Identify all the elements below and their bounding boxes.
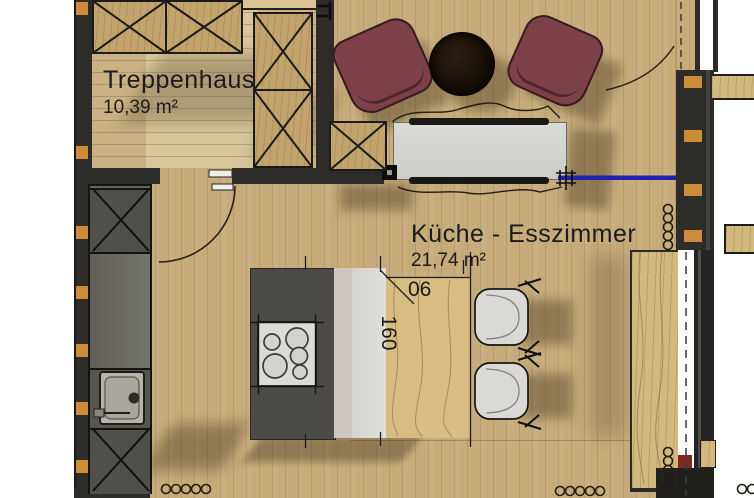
round-coffee-table: [429, 32, 495, 96]
wall-treppenhaus-a: [90, 168, 160, 184]
room-label-kueche: Küche - Esszimmer: [411, 220, 636, 249]
wall-stud: [684, 76, 702, 88]
shadow-chair-2: [522, 374, 572, 418]
frame-wood-block: [700, 440, 716, 468]
sink-cabinet: [90, 368, 150, 430]
dimension-table-length: 160: [378, 298, 400, 368]
wall-stub-top-right: [712, 74, 754, 100]
room-area-kueche: 21,74 m²: [411, 250, 486, 272]
counter-worktop: [90, 252, 150, 370]
plank-seam: [350, 440, 676, 441]
shadow-sideboard: [564, 128, 616, 210]
window-sill-bottom: [656, 468, 714, 498]
wall-right-inner-line: [706, 70, 710, 252]
shadow-side-cabinet: [340, 184, 412, 210]
appliance-top: [90, 188, 150, 254]
appliance-bottom: [90, 428, 150, 494]
wall-stud: [76, 344, 88, 357]
wall-end-cap-dot: [387, 170, 392, 175]
island-ledge: [334, 268, 352, 438]
frame-red-block: [678, 455, 692, 468]
sideboard-rail-bottom: [409, 177, 549, 184]
wall-stud: [76, 2, 88, 15]
wall-stud: [76, 146, 88, 159]
sideboard-rail-top: [409, 118, 549, 125]
wall-top-right-a: [695, 0, 700, 72]
room-area-treppenhaus: 10,39 m²: [103, 97, 178, 119]
wall-stud: [684, 230, 702, 242]
wardrobe-x-cabinet: [92, 0, 242, 54]
kitchen-counter: [90, 186, 150, 492]
wall-top-right-b: [713, 0, 718, 72]
floor-extension-top-right: [676, 0, 695, 72]
sideboard: [393, 122, 567, 180]
wall-right: [676, 70, 714, 252]
wall-treppenhaus-b: [232, 168, 384, 184]
shadow-chair-1: [522, 300, 572, 344]
wall-stud: [684, 130, 702, 142]
wall-stud: [684, 184, 702, 196]
wall-stub-mid-right: [724, 224, 754, 254]
wall-stud: [76, 402, 88, 415]
sliding-wood-panel: [630, 250, 680, 492]
wall-stud: [76, 286, 88, 299]
side-x-cabinet: [330, 122, 386, 170]
shadow-panel: [590, 256, 626, 436]
kitchen-island: [250, 268, 336, 440]
wall-stud: [76, 460, 88, 473]
dimension-table-width: 06: [408, 278, 431, 302]
tall-x-cabinet: [254, 12, 312, 168]
wall-stud: [76, 226, 88, 239]
floor-plan: Treppenhaus 10,39 m² Küche - Esszimmer 2…: [0, 0, 754, 498]
room-label-treppenhaus: Treppenhaus: [103, 66, 255, 95]
